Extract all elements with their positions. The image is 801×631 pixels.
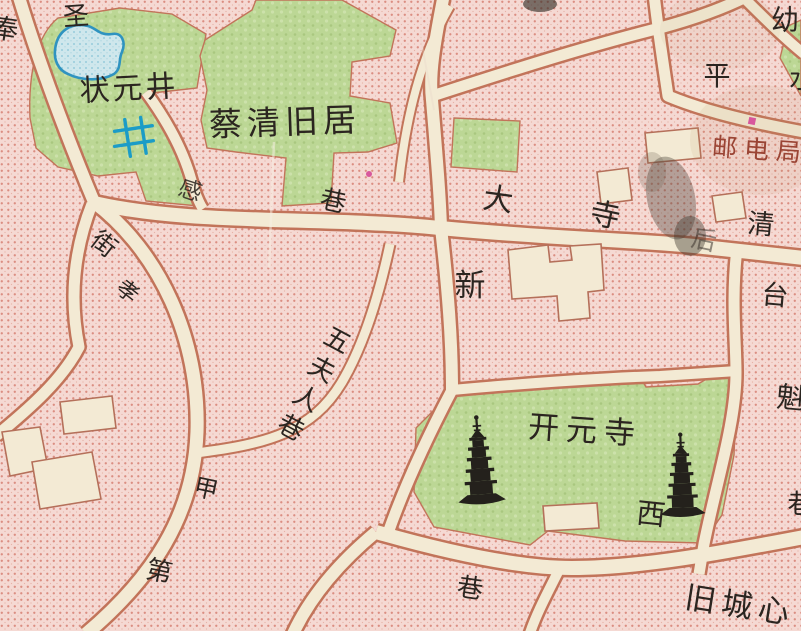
pond xyxy=(55,25,124,79)
city-map-canvas: 奉圣状元井蔡清旧居感巷街孝大寺后清台魁巷平水幼邮电局新五夫人巷开元寺西甲第巷旧城… xyxy=(0,0,801,631)
map-label-you: 幼 xyxy=(771,4,799,37)
map-label-tai: 台 xyxy=(760,279,790,312)
map-label-da: 大 xyxy=(481,181,516,220)
map-label-shui: 水 xyxy=(789,65,801,95)
building-footprint xyxy=(60,396,116,434)
map-label-ping: 平 xyxy=(704,62,731,93)
map-label-xi: 西 xyxy=(635,496,667,533)
map-label-sheng: 圣 xyxy=(62,1,90,33)
building-footprint xyxy=(712,192,746,222)
scanned-map-page: 奉圣状元井蔡清旧居感巷街孝大寺后清台魁巷平水幼邮电局新五夫人巷开元寺西甲第巷旧城… xyxy=(0,0,801,631)
building-footprint xyxy=(543,503,599,531)
map-label-zhuangyuan-well: 状元井 xyxy=(79,69,180,109)
map-label-qing: 清 xyxy=(746,208,776,241)
green-block-small xyxy=(451,118,520,172)
map-label-xiang-south: 巷 xyxy=(455,572,485,605)
building-footprint xyxy=(32,452,101,509)
magenta-dot-mark xyxy=(366,171,372,177)
map-label-caiqing-residence: 蔡清旧居 xyxy=(208,100,361,144)
map-label-kui: 魁 xyxy=(775,380,801,416)
map-label-xin: 新 xyxy=(455,268,486,304)
magenta-square-mark xyxy=(748,117,756,125)
map-label-xiang-east-edge: 巷 xyxy=(788,490,801,521)
